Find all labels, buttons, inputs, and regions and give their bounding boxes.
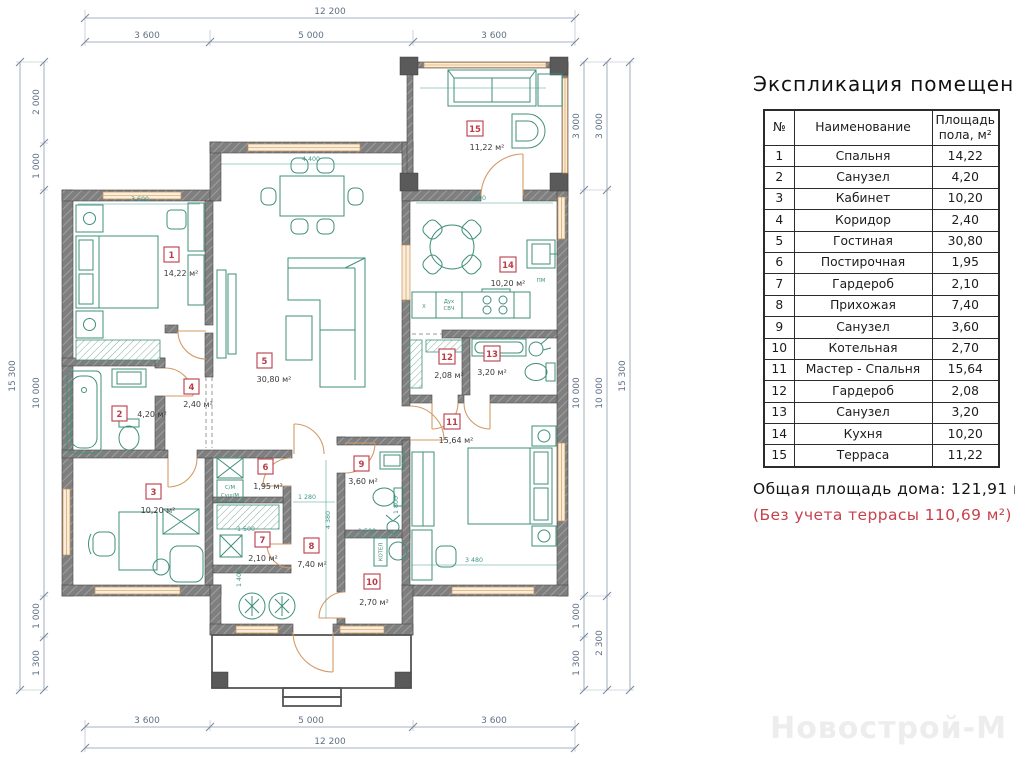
toilet-room2: [119, 419, 139, 450]
washer: [217, 458, 243, 478]
window: [340, 626, 384, 633]
svg-text:10 000: 10 000: [32, 377, 42, 409]
terrace-table: [538, 74, 562, 106]
room-schedule-panel: Экспликация помещений № Наименование Пло…: [753, 72, 1009, 524]
room-label-4: 42,40 м²: [183, 379, 213, 409]
room-label-13: 133,20 м²: [477, 346, 507, 377]
svg-text:1,95 м²: 1,95 м²: [253, 482, 283, 491]
svg-text:6: 6: [263, 463, 269, 473]
room-label-10: 102,70 м²: [359, 574, 389, 607]
coffee-table: [286, 316, 312, 360]
window: [558, 197, 565, 239]
svg-text:14,22 м²: 14,22 м²: [164, 269, 199, 278]
armchair-room3: [170, 546, 203, 582]
table-row: 14Кухня10,20: [764, 424, 999, 445]
svg-text:12 200: 12 200: [314, 737, 346, 747]
svg-text:3 400: 3 400: [468, 195, 486, 202]
window: [558, 443, 565, 521]
svg-text:12: 12: [441, 353, 453, 363]
room-schedule-table: № Наименование Площадь пола, м² 1Спальня…: [763, 109, 1000, 468]
dryer-label: Суш/М: [221, 493, 239, 499]
chair-room3: [89, 532, 116, 556]
svg-text:7: 7: [260, 536, 266, 546]
svg-text:4 380: 4 380: [325, 511, 332, 529]
svg-text:11: 11: [446, 418, 458, 428]
microwave-label: СВЧ: [444, 306, 455, 312]
watermark: Новострой-М: [770, 711, 1007, 746]
grill: [512, 114, 545, 148]
col-header-name: Наименование: [794, 110, 932, 146]
svg-text:15: 15: [469, 125, 481, 135]
svg-text:3 600: 3 600: [134, 716, 160, 726]
door-hall-living: [294, 424, 324, 454]
sofa-living: [288, 258, 365, 387]
svg-text:1 300: 1 300: [572, 650, 582, 676]
entry-steps: [283, 697, 341, 706]
svg-text:2,40 м²: 2,40 м²: [183, 400, 213, 409]
table-row: 4Коридор2,40: [764, 210, 999, 231]
svg-text:4: 4: [189, 383, 195, 393]
col-header-number: №: [764, 110, 794, 146]
door-entry: [293, 632, 333, 672]
wardrobe-room11: [412, 452, 434, 526]
terrace-pillar: [550, 57, 568, 75]
porch: [212, 635, 411, 706]
svg-text:8: 8: [309, 542, 315, 552]
window: [563, 78, 568, 173]
svg-text:10 000: 10 000: [595, 377, 605, 409]
room-label-6: 61,95 м²: [253, 459, 283, 491]
nightstand: [76, 311, 103, 338]
area-totals: Общая площадь дома: 121,91 м² (Без учета…: [753, 480, 1009, 524]
table-row: 3Кабинет10,20: [764, 188, 999, 209]
plant: [269, 593, 295, 619]
table-row: 13Санузел3,20: [764, 402, 999, 423]
svg-text:1 500: 1 500: [237, 526, 255, 533]
svg-text:2,08 м²: 2,08 м²: [434, 371, 464, 380]
washer-label: С/М: [225, 485, 235, 491]
svg-text:15 300: 15 300: [8, 360, 18, 392]
sink-room2: [112, 369, 146, 387]
svg-text:1 400: 1 400: [236, 569, 243, 587]
svg-text:2 300: 2 300: [595, 630, 605, 656]
svg-text:5 000: 5 000: [298, 716, 324, 726]
wardrobe-hatch: [76, 340, 160, 360]
svg-text:2,70 м²: 2,70 м²: [359, 598, 389, 607]
dining-chairs: [261, 158, 363, 234]
toilet-room13: [525, 363, 555, 381]
room-label-1: 114,22 м²: [164, 247, 199, 278]
nightstand: [532, 426, 556, 446]
desk-room11: [412, 530, 432, 580]
table-row: 9Санузел3,60: [764, 317, 999, 338]
svg-text:3: 3: [151, 488, 157, 498]
svg-text:1: 1: [169, 251, 175, 261]
svg-text:4 400: 4 400: [302, 156, 320, 163]
table-row: 12Гардероб2,08: [764, 381, 999, 402]
cabinet-room1: [188, 203, 204, 305]
svg-text:1 000: 1 000: [32, 153, 42, 179]
terrace-pillar: [400, 173, 418, 191]
table-row: 11Мастер - Спальня15,64: [764, 359, 999, 380]
door-cabinet3: [168, 458, 197, 487]
svg-text:2,10 м²: 2,10 м²: [248, 554, 278, 563]
svg-text:5 000: 5 000: [298, 31, 324, 41]
cooktop: [482, 289, 510, 314]
svg-text:3 600: 3 600: [131, 196, 149, 203]
dining-table: [280, 176, 344, 216]
dishwasher-label: ПМ: [537, 278, 546, 284]
cabinet-room7: [220, 535, 242, 557]
terrace-pillar: [550, 173, 568, 191]
svg-text:10 000: 10 000: [572, 377, 582, 409]
room-label-7: 72,10 м²: [248, 532, 278, 563]
svg-text:15,64 м²: 15,64 м²: [439, 436, 474, 445]
tv-unit: [217, 270, 236, 358]
floor-plan-drawing: Х Дух СВЧ ПМ С/М Суш/М КОТЕЛ 114,22 м² 2…: [0, 0, 700, 768]
window: [452, 587, 534, 594]
svg-text:13: 13: [486, 350, 498, 360]
nightstand: [76, 205, 103, 232]
svg-text:10,20 м²: 10,20 м²: [141, 506, 176, 515]
window: [236, 626, 278, 633]
svg-text:1 000: 1 000: [572, 603, 582, 629]
floor-plan-sheet: Х Дух СВЧ ПМ С/М Суш/М КОТЕЛ 114,22 м² 2…: [0, 0, 1015, 768]
svg-text:4,20 м²: 4,20 м²: [137, 410, 167, 419]
room-label-15: 1511,22 м²: [467, 121, 504, 152]
svg-text:3 600: 3 600: [481, 31, 507, 41]
window: [95, 587, 180, 594]
svg-text:3 600: 3 600: [134, 31, 160, 41]
svg-text:12 200: 12 200: [314, 7, 346, 17]
window: [63, 489, 70, 555]
kitchen-counter: [412, 292, 530, 318]
terrace-pillar: [400, 57, 418, 75]
svg-text:1 800: 1 800: [393, 496, 400, 514]
bed-room1: [76, 236, 158, 308]
door-bathroom13: [464, 403, 490, 429]
side-table-room3: [153, 559, 169, 575]
porch-pillar: [212, 672, 228, 688]
dishwasher-sink: [527, 240, 557, 268]
desk-room3: [119, 512, 157, 570]
svg-text:1 300: 1 300: [32, 650, 42, 676]
oven-label: Дух: [444, 299, 454, 305]
svg-text:14: 14: [502, 261, 514, 271]
fridge-label: Х: [422, 304, 426, 310]
table-row: 10Котельная2,70: [764, 338, 999, 359]
svg-text:7,40 м²: 7,40 м²: [297, 560, 327, 569]
svg-text:9: 9: [359, 460, 365, 470]
svg-text:11,22 м²: 11,22 м²: [470, 143, 505, 152]
table-row: 5Гостиная30,80: [764, 231, 999, 252]
svg-text:2: 2: [117, 410, 123, 420]
door-boiler10: [319, 592, 345, 618]
entry-steps: [283, 688, 341, 697]
room-label-14: 1410,20 м²: [491, 257, 526, 288]
kitchen-table: [430, 225, 474, 269]
svg-text:3 000: 3 000: [572, 113, 582, 139]
boiler-label: КОТЕЛ: [379, 543, 385, 562]
room-label-8: 87,40 м²: [297, 538, 327, 569]
room-label-9: 93,60 м²: [348, 456, 378, 486]
svg-text:1 280: 1 280: [298, 494, 316, 501]
svg-text:30,80 м²: 30,80 м²: [257, 375, 292, 384]
bed-room11: [468, 448, 552, 524]
window: [424, 63, 546, 68]
window: [248, 144, 360, 151]
door-bedroom1: [178, 331, 206, 359]
schedule-title: Экспликация помещений: [753, 72, 1009, 96]
table-row: 7Гардероб2,10: [764, 274, 999, 295]
porch-pillar: [395, 672, 411, 688]
svg-text:3,20 м²: 3,20 м²: [477, 368, 507, 377]
svg-text:2 000: 2 000: [32, 89, 42, 115]
svg-text:1 500: 1 500: [358, 528, 376, 535]
table-row: 8Прихожая7,40: [764, 295, 999, 316]
svg-text:5: 5: [262, 357, 268, 367]
table-row: 6Постирочная1,95: [764, 252, 999, 273]
nightstand: [532, 526, 556, 546]
door-master11: [410, 406, 444, 440]
hanger-hatch: [410, 340, 422, 388]
col-header-area: Площадь пола, м²: [932, 110, 999, 146]
chair-room1: [167, 210, 186, 229]
door-terrace: [481, 154, 523, 196]
svg-text:3 480: 3 480: [465, 557, 483, 564]
sink-room13: [529, 338, 551, 356]
svg-text:1 000: 1 000: [32, 603, 42, 629]
table-row: 2Санузел4,20: [764, 167, 999, 188]
room-label-12: 122,08 м²: [434, 349, 464, 380]
terrace-note-text: (Без учета террасы 110,69 м²): [753, 506, 1009, 524]
room-label-11: 1115,64 м²: [439, 414, 474, 445]
chair-room11: [436, 546, 456, 567]
svg-text:3 600: 3 600: [481, 716, 507, 726]
sink-room9: [380, 452, 404, 469]
table-header-row: № Наименование Площадь пола, м²: [764, 110, 999, 146]
svg-text:10: 10: [366, 578, 378, 588]
svg-text:3,60 м²: 3,60 м²: [348, 477, 378, 486]
total-area-text: Общая площадь дома: 121,91 м²: [753, 480, 1009, 498]
plant: [239, 593, 265, 619]
room-label-3: 310,20 м²: [141, 484, 176, 515]
svg-text:3 000: 3 000: [595, 113, 605, 139]
table-row: 15Терраса11,22: [764, 445, 999, 467]
window: [402, 245, 410, 300]
svg-text:15 300: 15 300: [618, 360, 628, 392]
svg-text:10,20 м²: 10,20 м²: [491, 279, 526, 288]
table-row: 1Спальня14,22: [764, 146, 999, 167]
